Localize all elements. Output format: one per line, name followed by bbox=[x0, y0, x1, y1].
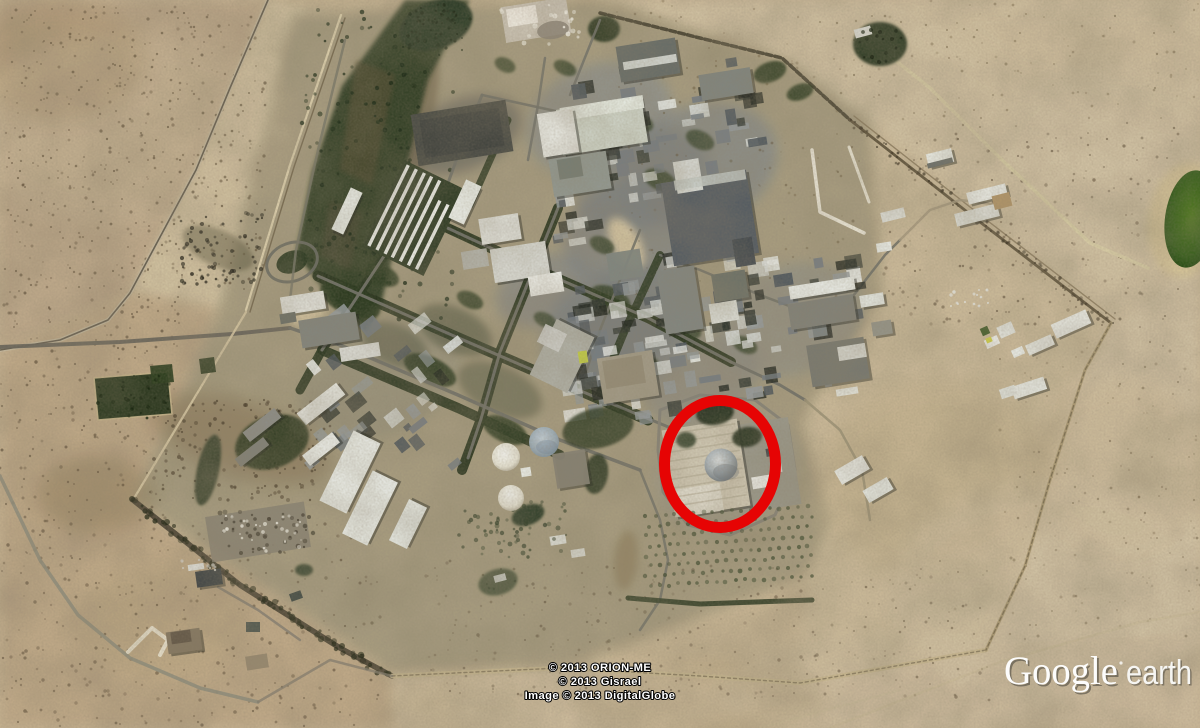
svg-text:earth: earth bbox=[1126, 654, 1192, 692]
svg-text:© 2013 ORION-ME: © 2013 ORION-ME bbox=[549, 662, 652, 674]
svg-text:© 2013 Gisrael: © 2013 Gisrael bbox=[559, 676, 642, 688]
svg-text:Google: Google bbox=[1004, 648, 1118, 693]
svg-text:Image © 2013 DigitalGlobe: Image © 2013 DigitalGlobe bbox=[525, 690, 676, 702]
